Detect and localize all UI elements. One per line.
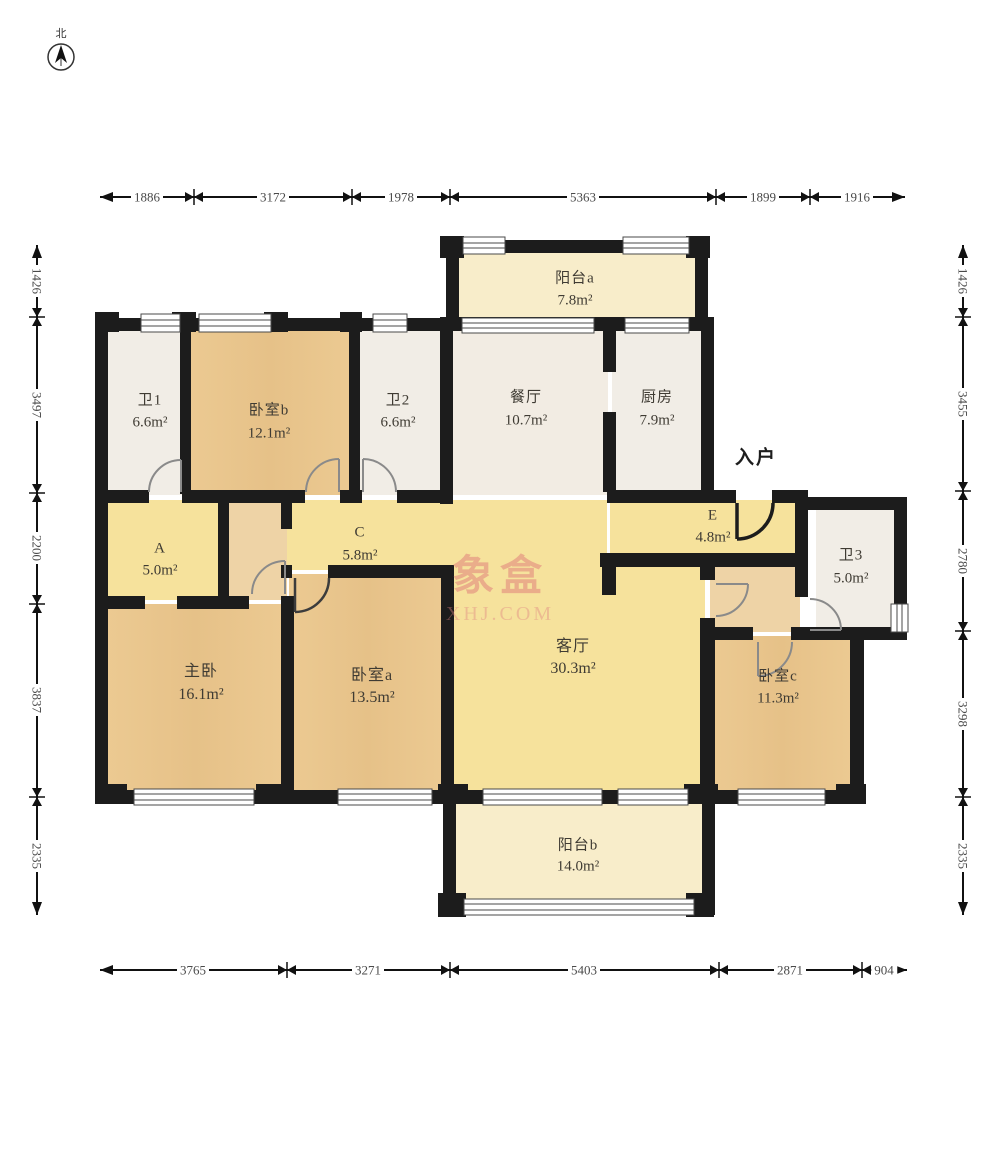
- compass-north-label: 北: [56, 25, 67, 41]
- room-label-living: 客厅: [556, 639, 590, 655]
- dim-top-0: 1886: [131, 191, 163, 204]
- window-kitchen: [625, 318, 689, 333]
- room-fill-corridor-right: [710, 562, 800, 632]
- room-area-bath1: 6.6m²: [133, 416, 168, 431]
- window-bedroom-b: [199, 314, 271, 332]
- watermark-site: XHJ.COM: [446, 604, 554, 624]
- room-label-bath2: 卫2: [386, 394, 411, 409]
- window-bedroom-a: [338, 789, 432, 805]
- dim-left-3: 3837: [31, 684, 44, 716]
- entry-label: 入户: [735, 443, 777, 470]
- watermark: 象盒 XHJ.COM: [446, 556, 554, 624]
- dim-left-1: 3497: [31, 389, 44, 421]
- room-area-living: 30.3m²: [550, 661, 595, 677]
- dim-bottom-3: 2871: [774, 964, 806, 977]
- room-fill-bath1: [102, 323, 186, 495]
- window-balcony-a-right: [623, 237, 689, 254]
- room-fill-kitchen: [612, 327, 706, 495]
- room-label-bath1: 卫1: [138, 394, 163, 409]
- room-label-balcony-b: 阳台b: [558, 839, 599, 854]
- dim-right-1: 3455: [957, 388, 970, 420]
- room-area-bedroom-b: 12.1m²: [248, 427, 290, 442]
- dim-bottom-2: 5403: [568, 964, 600, 977]
- watermark-title: 象盒: [446, 556, 554, 598]
- dim-bottom-1: 3271: [352, 964, 384, 977]
- room-area-balcony-a: 7.8m²: [558, 294, 593, 309]
- room-area-bath3: 5.0m²: [834, 572, 869, 587]
- room-area-master: 16.1m²: [178, 687, 223, 703]
- room-area-a: 5.0m²: [143, 564, 178, 579]
- dim-left-4: 2335: [31, 840, 44, 872]
- room-label-master: 主卧: [184, 664, 218, 680]
- window-master: [134, 789, 254, 805]
- dim-top-3: 5363: [567, 191, 599, 204]
- room-fill-dining: [450, 327, 608, 495]
- room-label-e: E: [708, 509, 718, 524]
- room-area-e: 4.8m²: [696, 531, 731, 546]
- room-fill-bath3: [816, 507, 896, 631]
- dim-left-0: 1426: [31, 265, 44, 297]
- dim-top-2: 1978: [385, 191, 417, 204]
- dim-right-3: 3298: [957, 698, 970, 730]
- room-area-balcony-b: 14.0m²: [557, 860, 599, 875]
- dim-top-1: 3172: [257, 191, 289, 204]
- room-label-c: C: [354, 526, 365, 541]
- room-area-c: 5.8m²: [343, 549, 378, 564]
- room-fill-bedroom-c: [710, 636, 854, 794]
- dim-right-0: 1426: [957, 265, 970, 297]
- window-bath3: [891, 604, 908, 632]
- room-area-dining: 10.7m²: [505, 414, 547, 429]
- dim-top-5: 1916: [841, 191, 873, 204]
- window-balcony-b: [464, 899, 694, 915]
- window-bath2: [373, 314, 407, 332]
- window-bath1: [141, 314, 180, 332]
- floorplan-page: 北 卫1 6.6m² 卧室b 12.1m² 卫2 6.6m² 阳台a 7.8m²…: [0, 0, 1000, 1168]
- room-area-bedroom-c: 11.3m²: [757, 692, 799, 707]
- room-label-kitchen: 厨房: [641, 391, 673, 406]
- window-bedroom-c: [738, 789, 825, 805]
- room-area-kitchen: 7.9m²: [640, 414, 675, 429]
- room-fill-bath2: [354, 323, 446, 495]
- dim-bottom-4: 904: [871, 964, 897, 977]
- compass-icon: [48, 44, 74, 70]
- room-area-bath2: 6.6m²: [381, 416, 416, 431]
- window-living-right: [618, 789, 688, 805]
- dim-left-2: 2200: [31, 532, 44, 564]
- room-label-balcony-a: 阳台a: [555, 272, 595, 287]
- dim-right-4: 2335: [957, 840, 970, 872]
- room-label-a: A: [154, 542, 166, 557]
- room-label-bedroom-a: 卧室a: [351, 668, 393, 684]
- room-label-bedroom-c: 卧室c: [758, 670, 798, 685]
- room-label-dining: 餐厅: [510, 391, 542, 406]
- room-area-bedroom-a: 13.5m²: [349, 690, 394, 706]
- room-fill-corridor: [225, 500, 287, 600]
- dim-bottom-0: 3765: [177, 964, 209, 977]
- window-dining-slider: [462, 318, 594, 333]
- room-label-bedroom-b: 卧室b: [249, 404, 290, 419]
- window-balcony-a-left: [463, 237, 505, 254]
- dim-top-4: 1899: [747, 191, 779, 204]
- window-living-slider: [483, 789, 602, 805]
- dim-right-2: 2780: [957, 545, 970, 577]
- room-label-bath3: 卫3: [839, 549, 864, 564]
